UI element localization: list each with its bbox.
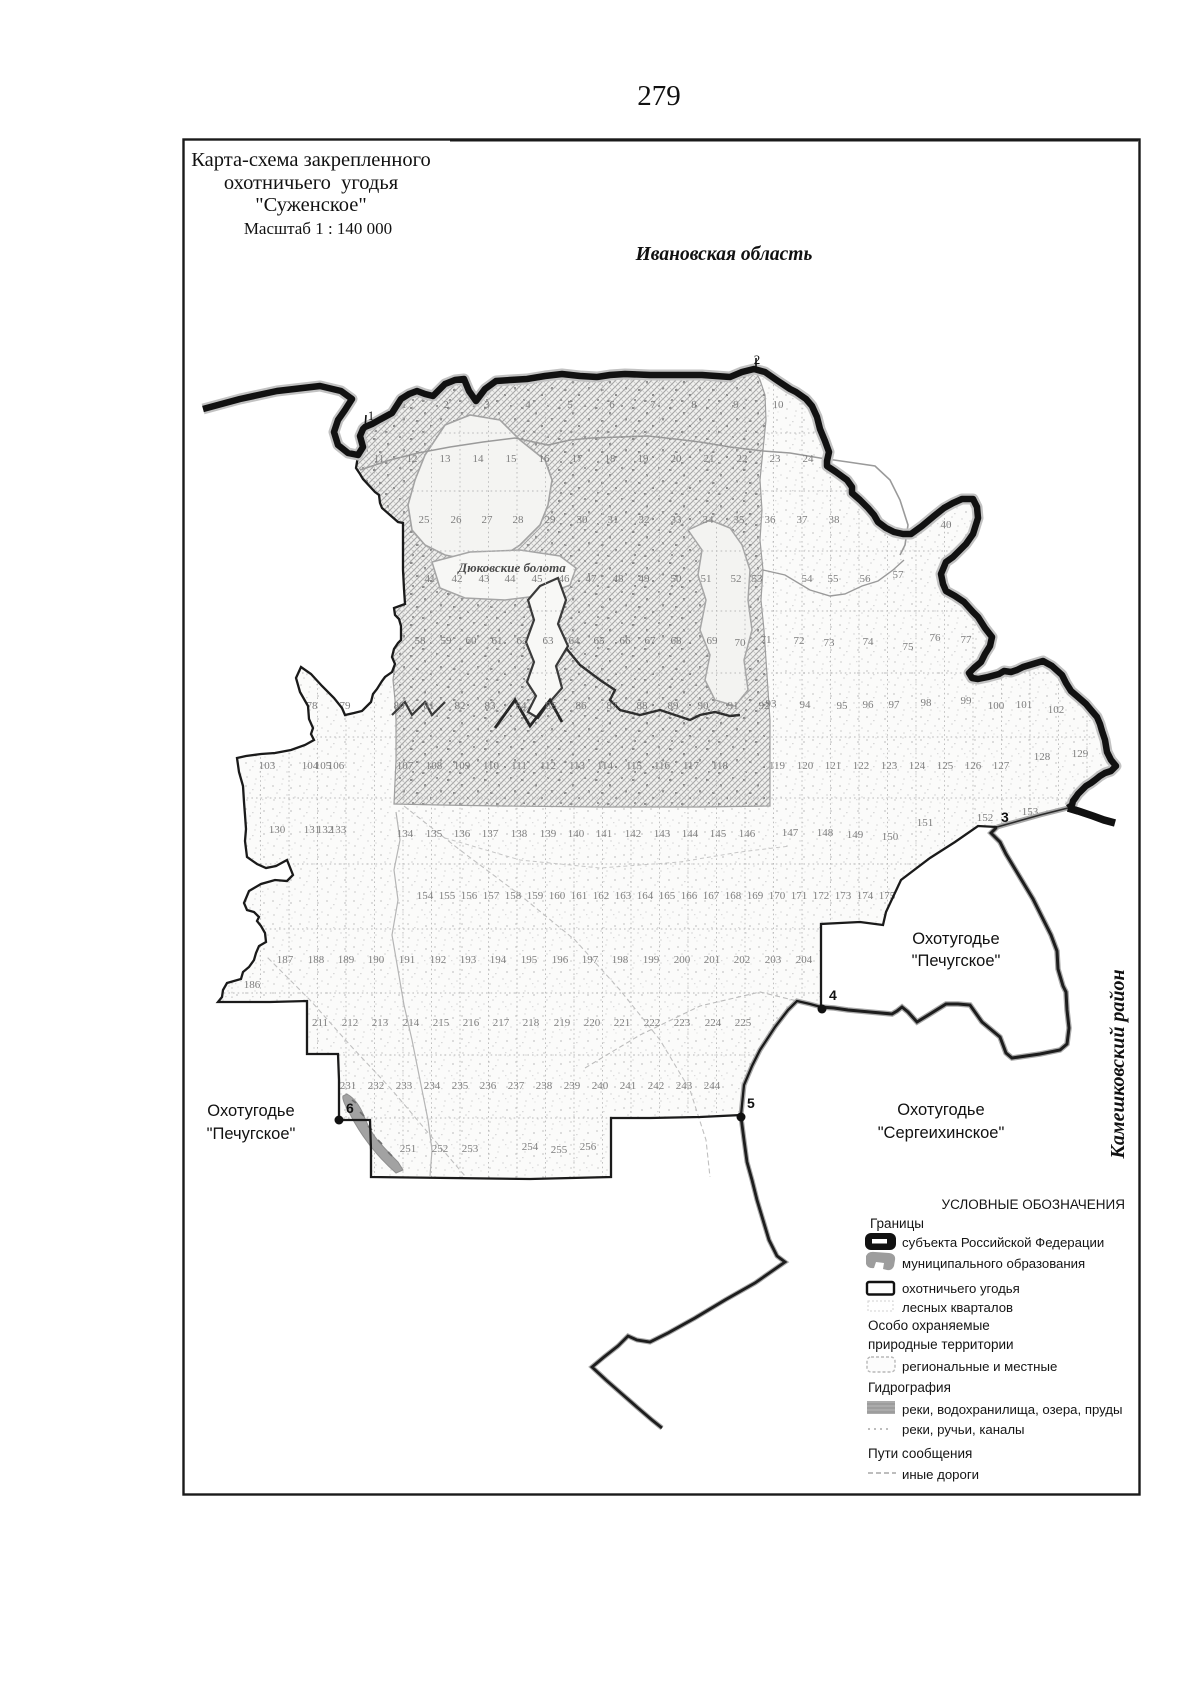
svg-text:202: 202	[734, 954, 751, 966]
svg-text:164: 164	[637, 890, 654, 902]
svg-text:236: 236	[480, 1080, 497, 1092]
svg-text:27: 27	[482, 514, 494, 526]
svg-text:3: 3	[1001, 809, 1009, 825]
svg-text:116: 116	[654, 760, 671, 772]
svg-text:47: 47	[586, 573, 598, 585]
svg-text:субъекта Российской Федерации: субъекта Российской Федерации	[902, 1235, 1104, 1250]
svg-text:100: 100	[988, 700, 1005, 712]
svg-text:Охотугодье: Охотугодье	[207, 1102, 294, 1120]
svg-text:48: 48	[613, 573, 625, 585]
svg-text:130: 130	[269, 824, 286, 836]
svg-text:186: 186	[244, 979, 261, 991]
svg-text:193: 193	[460, 954, 477, 966]
svg-text:157: 157	[483, 890, 500, 902]
svg-text:251: 251	[400, 1143, 417, 1155]
svg-text:225: 225	[735, 1017, 752, 1029]
svg-text:40: 40	[941, 519, 953, 531]
svg-text:170: 170	[769, 890, 786, 902]
svg-text:127: 127	[993, 760, 1010, 772]
svg-text:21: 21	[704, 453, 715, 465]
svg-text:15: 15	[506, 453, 518, 465]
svg-text:199: 199	[643, 954, 660, 966]
svg-text:18: 18	[605, 453, 617, 465]
svg-text:38: 38	[829, 514, 841, 526]
svg-text:239: 239	[564, 1080, 581, 1092]
svg-text:84: 84	[516, 700, 528, 712]
svg-text:6: 6	[609, 399, 615, 411]
svg-text:"Печугское": "Печугское"	[207, 1125, 296, 1143]
svg-text:169: 169	[747, 890, 764, 902]
svg-text:67: 67	[645, 635, 657, 647]
svg-text:29: 29	[545, 514, 557, 526]
svg-text:173: 173	[835, 890, 852, 902]
svg-text:20: 20	[671, 453, 683, 465]
svg-text:"Суженское": "Суженское"	[255, 194, 366, 216]
svg-text:232: 232	[368, 1080, 385, 1092]
svg-text:31: 31	[608, 514, 619, 526]
svg-text:155: 155	[439, 890, 456, 902]
svg-text:Охотугодье: Охотугодье	[912, 930, 999, 948]
svg-text:216: 216	[463, 1017, 480, 1029]
svg-text:244: 244	[704, 1080, 721, 1092]
svg-text:12: 12	[407, 453, 418, 465]
svg-text:154: 154	[417, 890, 434, 902]
svg-text:148: 148	[817, 827, 834, 839]
svg-text:220: 220	[584, 1017, 601, 1029]
svg-text:реки, водохранилища, озера, пр: реки, водохранилища, озера, пруды	[902, 1402, 1122, 1417]
svg-text:126: 126	[965, 760, 982, 772]
svg-text:140: 140	[568, 828, 585, 840]
svg-text:172: 172	[813, 890, 830, 902]
svg-text:10: 10	[773, 399, 785, 411]
svg-text:36: 36	[765, 514, 777, 526]
svg-text:56: 56	[860, 573, 872, 585]
svg-text:190: 190	[368, 954, 385, 966]
svg-text:59: 59	[441, 635, 453, 647]
svg-text:2: 2	[443, 399, 449, 411]
svg-text:166: 166	[681, 890, 698, 902]
svg-text:52: 52	[731, 573, 742, 585]
svg-text:охотничьего угодья: охотничьего угодья	[902, 1281, 1020, 1296]
svg-text:196: 196	[552, 954, 569, 966]
svg-text:231: 231	[340, 1080, 357, 1092]
svg-text:природные территории: природные территории	[868, 1337, 1014, 1352]
svg-text:75: 75	[903, 641, 915, 653]
svg-text:19: 19	[638, 453, 650, 465]
svg-text:иные дороги: иные дороги	[902, 1467, 979, 1482]
svg-text:162: 162	[593, 890, 610, 902]
svg-text:144: 144	[682, 828, 699, 840]
svg-text:136: 136	[454, 828, 471, 840]
svg-text:Границы: Границы	[870, 1216, 924, 1231]
svg-text:60: 60	[466, 635, 478, 647]
svg-text:49: 49	[639, 573, 651, 585]
svg-text:34: 34	[703, 514, 715, 526]
svg-text:16: 16	[539, 453, 551, 465]
svg-text:161: 161	[571, 890, 588, 902]
svg-text:65: 65	[594, 635, 606, 647]
svg-text:200: 200	[674, 954, 691, 966]
svg-text:охотничьего угодья: охотничьего угодья	[224, 172, 399, 194]
svg-text:219: 219	[554, 1017, 571, 1029]
svg-text:96: 96	[863, 699, 875, 711]
svg-text:129: 129	[1072, 748, 1089, 760]
svg-text:106: 106	[328, 760, 345, 772]
svg-text:111: 111	[511, 760, 527, 772]
svg-text:120: 120	[797, 760, 814, 772]
svg-text:23: 23	[770, 453, 782, 465]
svg-text:Особо охраняемые: Особо охраняемые	[868, 1318, 990, 1333]
svg-text:58: 58	[415, 635, 427, 647]
svg-text:70: 70	[735, 637, 747, 649]
svg-text:125: 125	[937, 760, 954, 772]
svg-text:41: 41	[425, 573, 436, 585]
svg-text:203: 203	[765, 954, 782, 966]
svg-text:223: 223	[674, 1017, 691, 1029]
svg-text:138: 138	[511, 828, 528, 840]
svg-text:222: 222	[644, 1017, 661, 1029]
svg-text:121: 121	[825, 760, 842, 772]
svg-text:5: 5	[567, 399, 573, 411]
svg-text:97: 97	[889, 699, 901, 711]
svg-text:82: 82	[455, 700, 466, 712]
svg-text:муниципального образования: муниципального образования	[902, 1256, 1085, 1271]
svg-text:Гидрография: Гидрография	[868, 1380, 951, 1395]
svg-text:лесных кварталов: лесных кварталов	[902, 1300, 1013, 1315]
svg-text:81: 81	[424, 700, 435, 712]
svg-text:6: 6	[346, 1100, 354, 1116]
svg-text:115: 115	[626, 760, 643, 772]
svg-text:187: 187	[277, 954, 294, 966]
svg-text:93: 93	[766, 698, 778, 710]
svg-text:240: 240	[592, 1080, 609, 1092]
svg-text:133: 133	[330, 824, 347, 836]
svg-text:8: 8	[691, 399, 697, 411]
svg-text:156: 156	[461, 890, 478, 902]
svg-text:77: 77	[961, 634, 973, 646]
svg-text:53: 53	[752, 573, 764, 585]
svg-text:158: 158	[505, 890, 522, 902]
svg-text:87: 87	[607, 700, 619, 712]
svg-text:233: 233	[396, 1080, 413, 1092]
svg-text:238: 238	[536, 1080, 553, 1092]
svg-text:124: 124	[909, 760, 926, 772]
svg-text:159: 159	[527, 890, 544, 902]
svg-text:122: 122	[853, 760, 870, 772]
svg-text:32: 32	[639, 514, 650, 526]
svg-text:168: 168	[725, 890, 742, 902]
svg-text:117: 117	[683, 760, 700, 772]
svg-text:88: 88	[637, 700, 649, 712]
svg-text:54: 54	[802, 573, 814, 585]
svg-text:реки, ручьи, каналы: реки, ручьи, каналы	[902, 1422, 1025, 1437]
svg-text:90: 90	[698, 700, 710, 712]
svg-text:134: 134	[397, 828, 414, 840]
svg-text:192: 192	[430, 954, 447, 966]
svg-text:118: 118	[712, 760, 729, 772]
svg-text:9: 9	[733, 399, 739, 411]
svg-text:89: 89	[668, 700, 680, 712]
svg-text:Масштаб 1 : 140 000: Масштаб 1 : 140 000	[244, 219, 392, 238]
svg-text:217: 217	[493, 1017, 510, 1029]
svg-text:86: 86	[576, 700, 588, 712]
svg-text:241: 241	[620, 1080, 637, 1092]
svg-text:30: 30	[577, 514, 589, 526]
svg-text:242: 242	[648, 1080, 665, 1092]
svg-text:160: 160	[549, 890, 566, 902]
svg-text:191: 191	[399, 954, 416, 966]
svg-text:141: 141	[596, 828, 613, 840]
svg-text:171: 171	[791, 890, 808, 902]
svg-text:72: 72	[794, 635, 805, 647]
svg-text:Пути сообщения: Пути сообщения	[868, 1446, 972, 1461]
svg-text:213: 213	[372, 1017, 389, 1029]
svg-text:197: 197	[582, 954, 599, 966]
svg-text:68: 68	[671, 635, 683, 647]
svg-text:"Сергеихинское": "Сергеихинское"	[878, 1124, 1005, 1142]
svg-text:123: 123	[881, 760, 898, 772]
svg-text:146: 146	[739, 828, 756, 840]
svg-text:99: 99	[961, 695, 973, 707]
svg-text:194: 194	[490, 954, 507, 966]
svg-text:252: 252	[432, 1143, 449, 1155]
svg-text:237: 237	[508, 1080, 525, 1092]
svg-text:163: 163	[615, 890, 632, 902]
svg-text:214: 214	[403, 1017, 420, 1029]
svg-text:74: 74	[863, 636, 875, 648]
svg-text:94: 94	[800, 699, 812, 711]
svg-text:198: 198	[612, 954, 629, 966]
svg-text:255: 255	[551, 1144, 568, 1156]
svg-text:150: 150	[882, 831, 899, 843]
svg-text:152: 152	[977, 812, 994, 824]
svg-text:107: 107	[397, 760, 414, 772]
svg-text:22: 22	[737, 453, 748, 465]
svg-text:73: 73	[824, 637, 836, 649]
svg-text:11: 11	[374, 453, 385, 465]
svg-text:254: 254	[522, 1141, 539, 1153]
svg-text:80: 80	[394, 700, 406, 712]
svg-text:57: 57	[893, 569, 905, 581]
svg-text:215: 215	[433, 1017, 450, 1029]
svg-text:4: 4	[525, 399, 531, 411]
svg-text:91: 91	[728, 700, 739, 712]
svg-text:113: 113	[569, 760, 586, 772]
svg-text:167: 167	[703, 890, 720, 902]
svg-text:50: 50	[671, 573, 683, 585]
svg-text:63: 63	[543, 635, 555, 647]
svg-text:региональные и местные: региональные и местные	[902, 1359, 1057, 1374]
svg-text:119: 119	[769, 760, 786, 772]
svg-text:13: 13	[440, 453, 452, 465]
svg-text:137: 137	[482, 828, 499, 840]
svg-text:109: 109	[454, 760, 471, 772]
svg-text:234: 234	[424, 1080, 441, 1092]
svg-text:64: 64	[569, 635, 581, 647]
svg-text:4: 4	[829, 987, 837, 1003]
svg-text:128: 128	[1034, 751, 1051, 763]
svg-text:143: 143	[654, 828, 671, 840]
svg-text:165: 165	[659, 890, 676, 902]
svg-text:102: 102	[1048, 704, 1065, 716]
svg-text:135: 135	[426, 828, 443, 840]
svg-text:211: 211	[312, 1017, 328, 1029]
svg-text:"Печугское": "Печугское"	[912, 952, 1001, 970]
svg-text:5: 5	[747, 1095, 755, 1111]
svg-text:142: 142	[625, 828, 642, 840]
svg-text:98: 98	[921, 697, 933, 709]
svg-text:204: 204	[796, 954, 813, 966]
svg-text:95: 95	[837, 700, 849, 712]
svg-text:224: 224	[705, 1017, 722, 1029]
svg-text:Карта-схема закрепленного: Карта-схема закрепленного	[191, 149, 430, 171]
svg-text:112: 112	[540, 760, 556, 772]
svg-text:256: 256	[580, 1141, 597, 1153]
svg-text:1: 1	[368, 408, 375, 423]
svg-text:Дюковские болота: Дюковские болота	[457, 560, 566, 575]
svg-text:201: 201	[704, 954, 721, 966]
svg-text:33: 33	[671, 514, 683, 526]
svg-text:195: 195	[521, 954, 538, 966]
svg-text:25: 25	[419, 514, 431, 526]
svg-text:85: 85	[546, 700, 558, 712]
svg-text:3: 3	[484, 399, 490, 411]
svg-text:7: 7	[650, 399, 656, 411]
svg-text:26: 26	[451, 514, 463, 526]
svg-text:71: 71	[761, 634, 772, 646]
svg-text:66: 66	[620, 635, 632, 647]
svg-text:253: 253	[462, 1143, 479, 1155]
svg-text:35: 35	[734, 514, 746, 526]
svg-text:62: 62	[517, 635, 528, 647]
svg-text:101: 101	[1016, 699, 1033, 711]
svg-text:145: 145	[710, 828, 727, 840]
svg-text:Ивановская область: Ивановская область	[635, 244, 813, 265]
svg-text:139: 139	[540, 828, 557, 840]
svg-text:147: 147	[782, 827, 799, 839]
svg-text:110: 110	[483, 760, 500, 772]
svg-text:55: 55	[828, 573, 840, 585]
svg-text:61: 61	[492, 635, 503, 647]
svg-text:37: 37	[797, 514, 809, 526]
svg-text:114: 114	[597, 760, 614, 772]
svg-text:221: 221	[614, 1017, 631, 1029]
svg-text:51: 51	[701, 573, 712, 585]
svg-text:14: 14	[473, 453, 485, 465]
svg-text:151: 151	[917, 817, 934, 829]
svg-text:Камешковский район: Камешковский район	[1107, 969, 1129, 1159]
svg-text:189: 189	[338, 954, 355, 966]
svg-text:235: 235	[452, 1080, 469, 1092]
svg-text:УСЛОВНЫЕ ОБОЗНАЧЕНИЯ: УСЛОВНЫЕ ОБОЗНАЧЕНИЯ	[942, 1197, 1125, 1212]
svg-text:103: 103	[259, 760, 276, 772]
svg-text:149: 149	[847, 829, 864, 841]
svg-text:174: 174	[857, 890, 874, 902]
svg-text:Охотугодье: Охотугодье	[897, 1101, 984, 1119]
svg-text:83: 83	[485, 700, 497, 712]
svg-text:28: 28	[513, 514, 525, 526]
svg-text:218: 218	[523, 1017, 540, 1029]
svg-text:243: 243	[676, 1080, 693, 1092]
svg-text:69: 69	[707, 635, 719, 647]
svg-text:212: 212	[342, 1017, 359, 1029]
svg-text:24: 24	[803, 453, 815, 465]
svg-text:279: 279	[637, 80, 681, 112]
svg-text:17: 17	[572, 453, 584, 465]
svg-text:108: 108	[426, 760, 443, 772]
svg-text:2: 2	[754, 352, 761, 367]
svg-text:76: 76	[930, 632, 942, 644]
svg-text:188: 188	[308, 954, 325, 966]
